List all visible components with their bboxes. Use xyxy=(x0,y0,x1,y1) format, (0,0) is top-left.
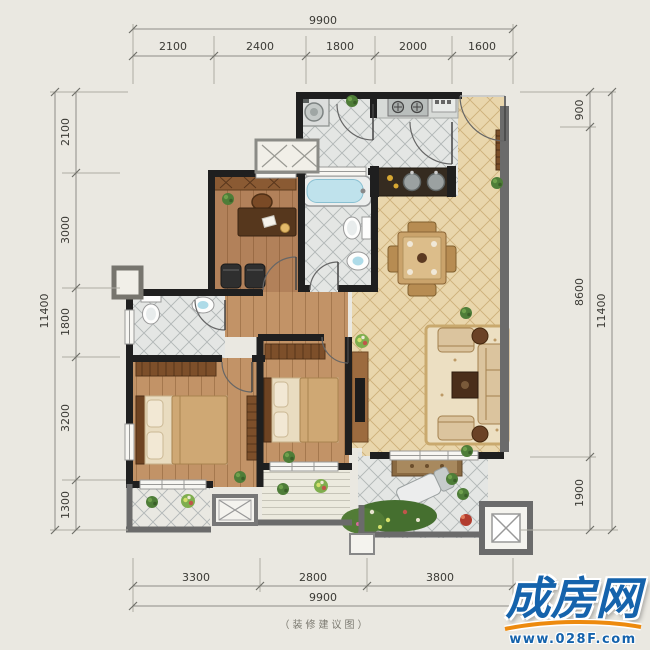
master-toilet xyxy=(141,294,161,324)
dim-top: 9900 2100 2400 1800 2000 1600 xyxy=(159,14,496,53)
svg-text:2100: 2100 xyxy=(159,40,187,53)
dim-right-total: 11400 xyxy=(595,294,608,329)
svg-text:1300: 1300 xyxy=(59,491,72,519)
watermark: 成房网 www.028F.com xyxy=(498,576,648,647)
svg-text:3300: 3300 xyxy=(182,571,210,584)
svg-text:1900: 1900 xyxy=(573,479,586,507)
watermark-url: www.028F.com xyxy=(498,632,648,647)
dim-bottom: 3300 2800 3800 9900 xyxy=(182,571,454,604)
master-balcony-floor xyxy=(130,487,210,532)
svg-text:1600: 1600 xyxy=(468,40,496,53)
dim-left-total: 11400 xyxy=(38,294,51,329)
tv-cabinet xyxy=(352,352,368,442)
washing-machine xyxy=(299,96,329,126)
svg-text:1800: 1800 xyxy=(326,40,354,53)
second-balcony-floor xyxy=(262,470,350,525)
ac-platform-west xyxy=(114,268,141,297)
master-bed xyxy=(136,396,227,464)
svg-text:2400: 2400 xyxy=(246,40,274,53)
floor-plan: 9900 2100 2400 1800 2000 1600 3300 2800 … xyxy=(0,0,650,650)
toilet xyxy=(344,217,372,239)
window-master-south xyxy=(140,480,206,489)
second-bed xyxy=(264,378,338,442)
window-second-south xyxy=(270,462,338,471)
svg-text:2800: 2800 xyxy=(299,571,327,584)
bathtub xyxy=(303,176,371,206)
svg-text:2100: 2100 xyxy=(59,118,72,146)
svg-text:900: 900 xyxy=(573,100,586,121)
kitchen-counter xyxy=(376,96,458,118)
svg-text:1800: 1800 xyxy=(59,308,72,336)
coffee-table xyxy=(452,372,478,398)
equipment-shaft xyxy=(482,504,530,552)
svg-text:2000: 2000 xyxy=(399,40,427,53)
svg-text:3000: 3000 xyxy=(59,216,72,244)
second-wardrobe xyxy=(265,344,325,359)
planter-box xyxy=(350,534,374,554)
bathroom-sink xyxy=(347,252,369,270)
window-master-west xyxy=(125,424,134,460)
dim-top-total: 9900 xyxy=(309,14,337,27)
svg-text:3200: 3200 xyxy=(59,404,72,432)
dim-bottom-total: 9900 xyxy=(309,591,337,604)
ac-platform-study xyxy=(256,140,318,172)
window-master-bath-west xyxy=(125,310,134,344)
watermark-brand: 成房网 xyxy=(498,576,648,621)
svg-text:3800: 3800 xyxy=(426,571,454,584)
hallway-floor xyxy=(225,292,348,337)
ac-platform-south xyxy=(214,496,256,524)
svg-text:8600: 8600 xyxy=(573,278,586,306)
kitchen-sink-counter xyxy=(376,168,450,196)
